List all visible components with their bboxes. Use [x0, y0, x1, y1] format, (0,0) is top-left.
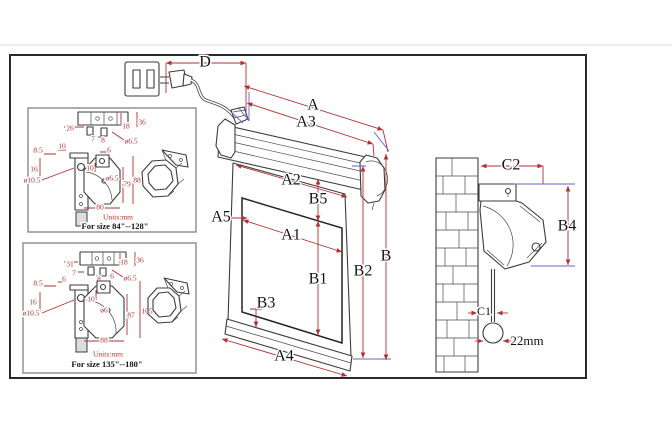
- dim-6: 6: [107, 146, 111, 155]
- rail-lug-4: [100, 268, 106, 276]
- dim-87: 87: [127, 311, 135, 320]
- dim-36: 36: [138, 118, 146, 127]
- dim-6b: 6: [110, 272, 114, 281]
- side-bracket-flange-2: [70, 285, 88, 290]
- dim-80: 80: [96, 203, 104, 212]
- dim-88b: 88: [100, 336, 108, 345]
- dim-label-a4: A4: [274, 348, 294, 365]
- housing-left-endcap: [216, 119, 235, 158]
- dim-105dia-b: ø10.5: [23, 309, 40, 318]
- dim-label-b4: B4: [558, 218, 577, 235]
- dim-6c: 6: [62, 275, 66, 284]
- dim-label-c1: C1: [477, 304, 491, 318]
- detail-box-top: 26 18 36 7 8 ø6.5 8.5 10 16 ø10.5 6 10 ø…: [24, 108, 196, 232]
- outlet-slot-right: [147, 70, 154, 88]
- dim-26: 26: [66, 124, 74, 133]
- projection-screen-drawing: D A A3: [0, 0, 672, 440]
- dim-hole-65: ø6.5: [124, 137, 137, 146]
- dim-hole-65c: ø6.5: [123, 274, 136, 283]
- dim-85b: 8.5: [33, 279, 43, 288]
- detail-box-bottom: 31 18 36 7 8 6 ø6.5 8.5 6 16 ø10.5 10 ø6…: [23, 243, 196, 373]
- dim-label-a: A: [307, 97, 319, 114]
- dim-label-b1: B1: [309, 271, 328, 288]
- dim-31: 31: [66, 260, 74, 269]
- octagon-tab-2: [97, 281, 110, 293]
- side-bracket-foot-2: [76, 338, 87, 352]
- dim-hole-6: ø6: [100, 306, 108, 315]
- dim-79: 79: [123, 180, 131, 189]
- dim-10b: 10: [86, 164, 94, 173]
- dim-105dia: ø10.5: [24, 176, 41, 185]
- dim-18: 18: [122, 122, 130, 131]
- units-label-bottom: Units:mm: [93, 350, 123, 359]
- dim-16: 16: [30, 165, 38, 174]
- rail-top-view: [78, 112, 128, 125]
- size-range-top: For size 84"--128": [82, 221, 149, 231]
- dim-hole-65b: ø6.5: [105, 174, 118, 183]
- dim-8: 8: [101, 136, 105, 145]
- dim-7: 7: [91, 135, 95, 144]
- side-bracket-flange: [70, 153, 88, 158]
- dim-label-a5: A5: [211, 209, 231, 226]
- dim-18b: 18: [120, 258, 128, 267]
- outlet-slot-left: [133, 70, 140, 88]
- dim-label-d: D: [199, 54, 211, 71]
- dim-105: 105: [141, 307, 153, 316]
- dim-label-b5: B5: [309, 191, 328, 208]
- dim-10c: 10: [87, 295, 95, 304]
- dim-label-b: B: [381, 248, 392, 265]
- dim-88: 88: [133, 176, 141, 185]
- dim-label-weight: 22mm: [510, 333, 543, 348]
- dim-label-b2: B2: [354, 263, 373, 280]
- dim-label-c2: C2: [502, 157, 521, 174]
- dim-85: 8.5: [33, 146, 43, 155]
- dim-16b: 16: [29, 298, 37, 307]
- size-range-bottom: For size 135"--180": [71, 359, 142, 369]
- dim-10: 10: [58, 142, 66, 151]
- dim-label-a3: A3: [296, 114, 316, 131]
- technical-drawing-page: D A A3: [0, 0, 672, 440]
- dim-label-a1: A1: [281, 227, 301, 244]
- cord-weight: [483, 323, 503, 343]
- dim-7b: 7: [72, 269, 76, 278]
- dim-label-a2: A2: [281, 172, 301, 189]
- dim-36b: 36: [136, 256, 144, 265]
- dim-label-b3: B3: [257, 295, 276, 312]
- rail-lug-3: [88, 267, 94, 275]
- octagon-tab: [96, 155, 109, 167]
